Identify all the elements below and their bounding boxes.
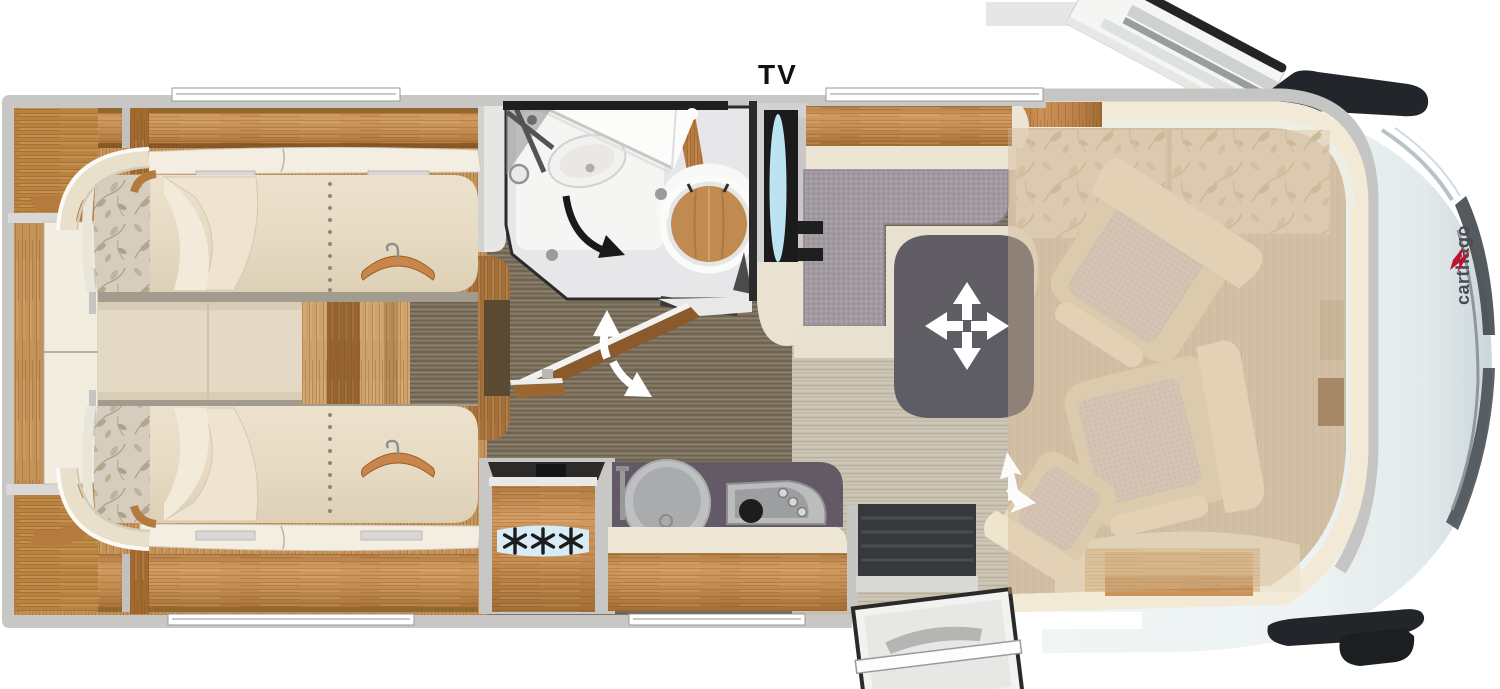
svg-text:TV: TV xyxy=(758,59,798,90)
